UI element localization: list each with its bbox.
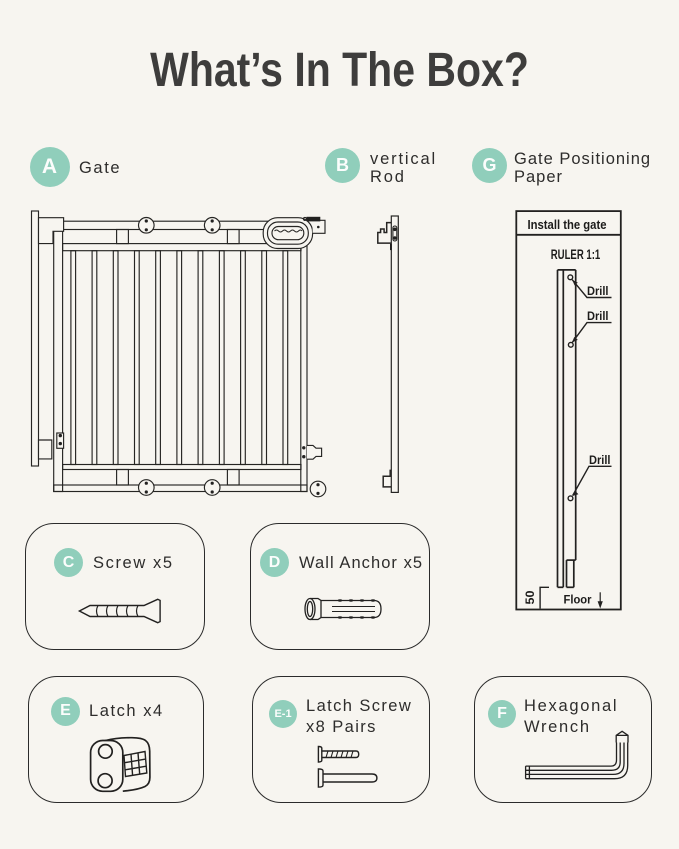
svg-text:Floor: Floor	[564, 593, 592, 607]
svg-text:Drill: Drill	[587, 309, 609, 323]
svg-text:50: 50	[523, 590, 537, 604]
svg-text:Drill: Drill	[587, 284, 609, 298]
svg-text:RULER 1:1: RULER 1:1	[551, 247, 601, 262]
svg-text:Drill: Drill	[589, 453, 611, 467]
svg-text:Install the gate: Install the gate	[528, 218, 607, 232]
